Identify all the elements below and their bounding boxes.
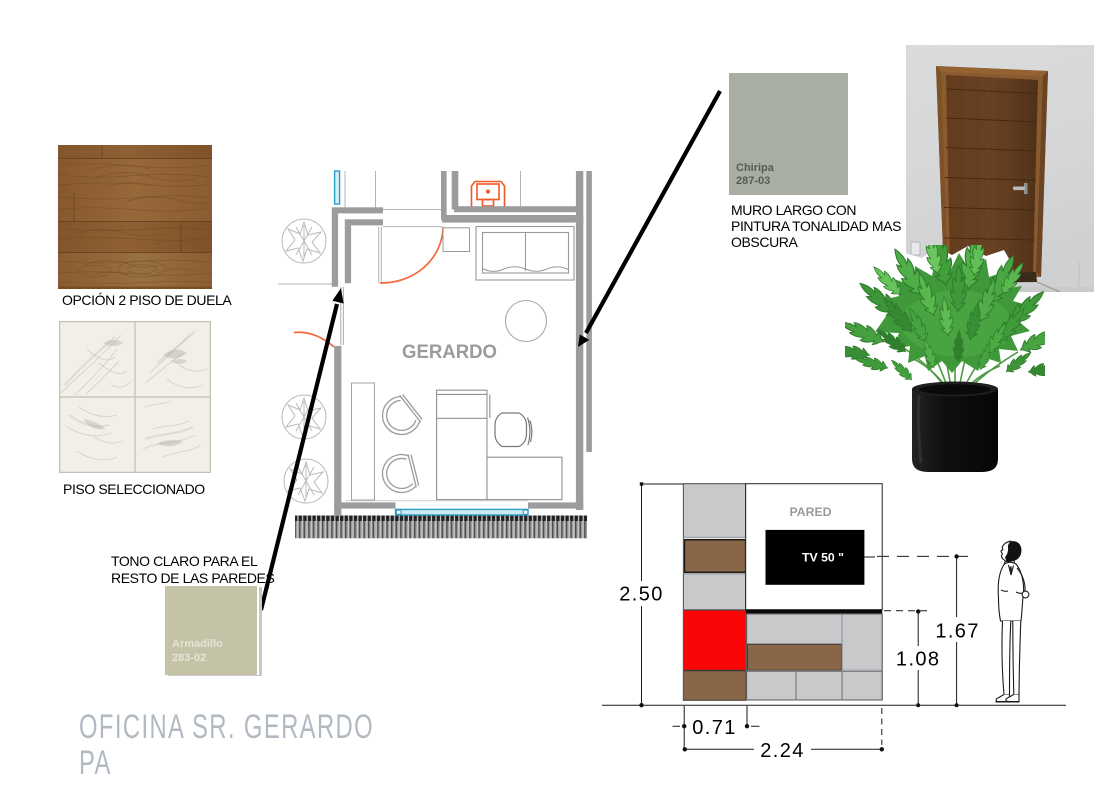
svg-text:GERARDO: GERARDO <box>402 341 497 363</box>
svg-text:PARED: PARED <box>790 505 832 519</box>
svg-text:TV 50 ": TV 50 " <box>802 553 844 565</box>
svg-text:2.50: 2.50 <box>619 584 664 606</box>
svg-text:2.24: 2.24 <box>760 740 805 762</box>
svg-text:1.08: 1.08 <box>896 649 941 671</box>
svg-text:0.71: 0.71 <box>692 717 737 739</box>
svg-text:1.67: 1.67 <box>935 621 980 643</box>
